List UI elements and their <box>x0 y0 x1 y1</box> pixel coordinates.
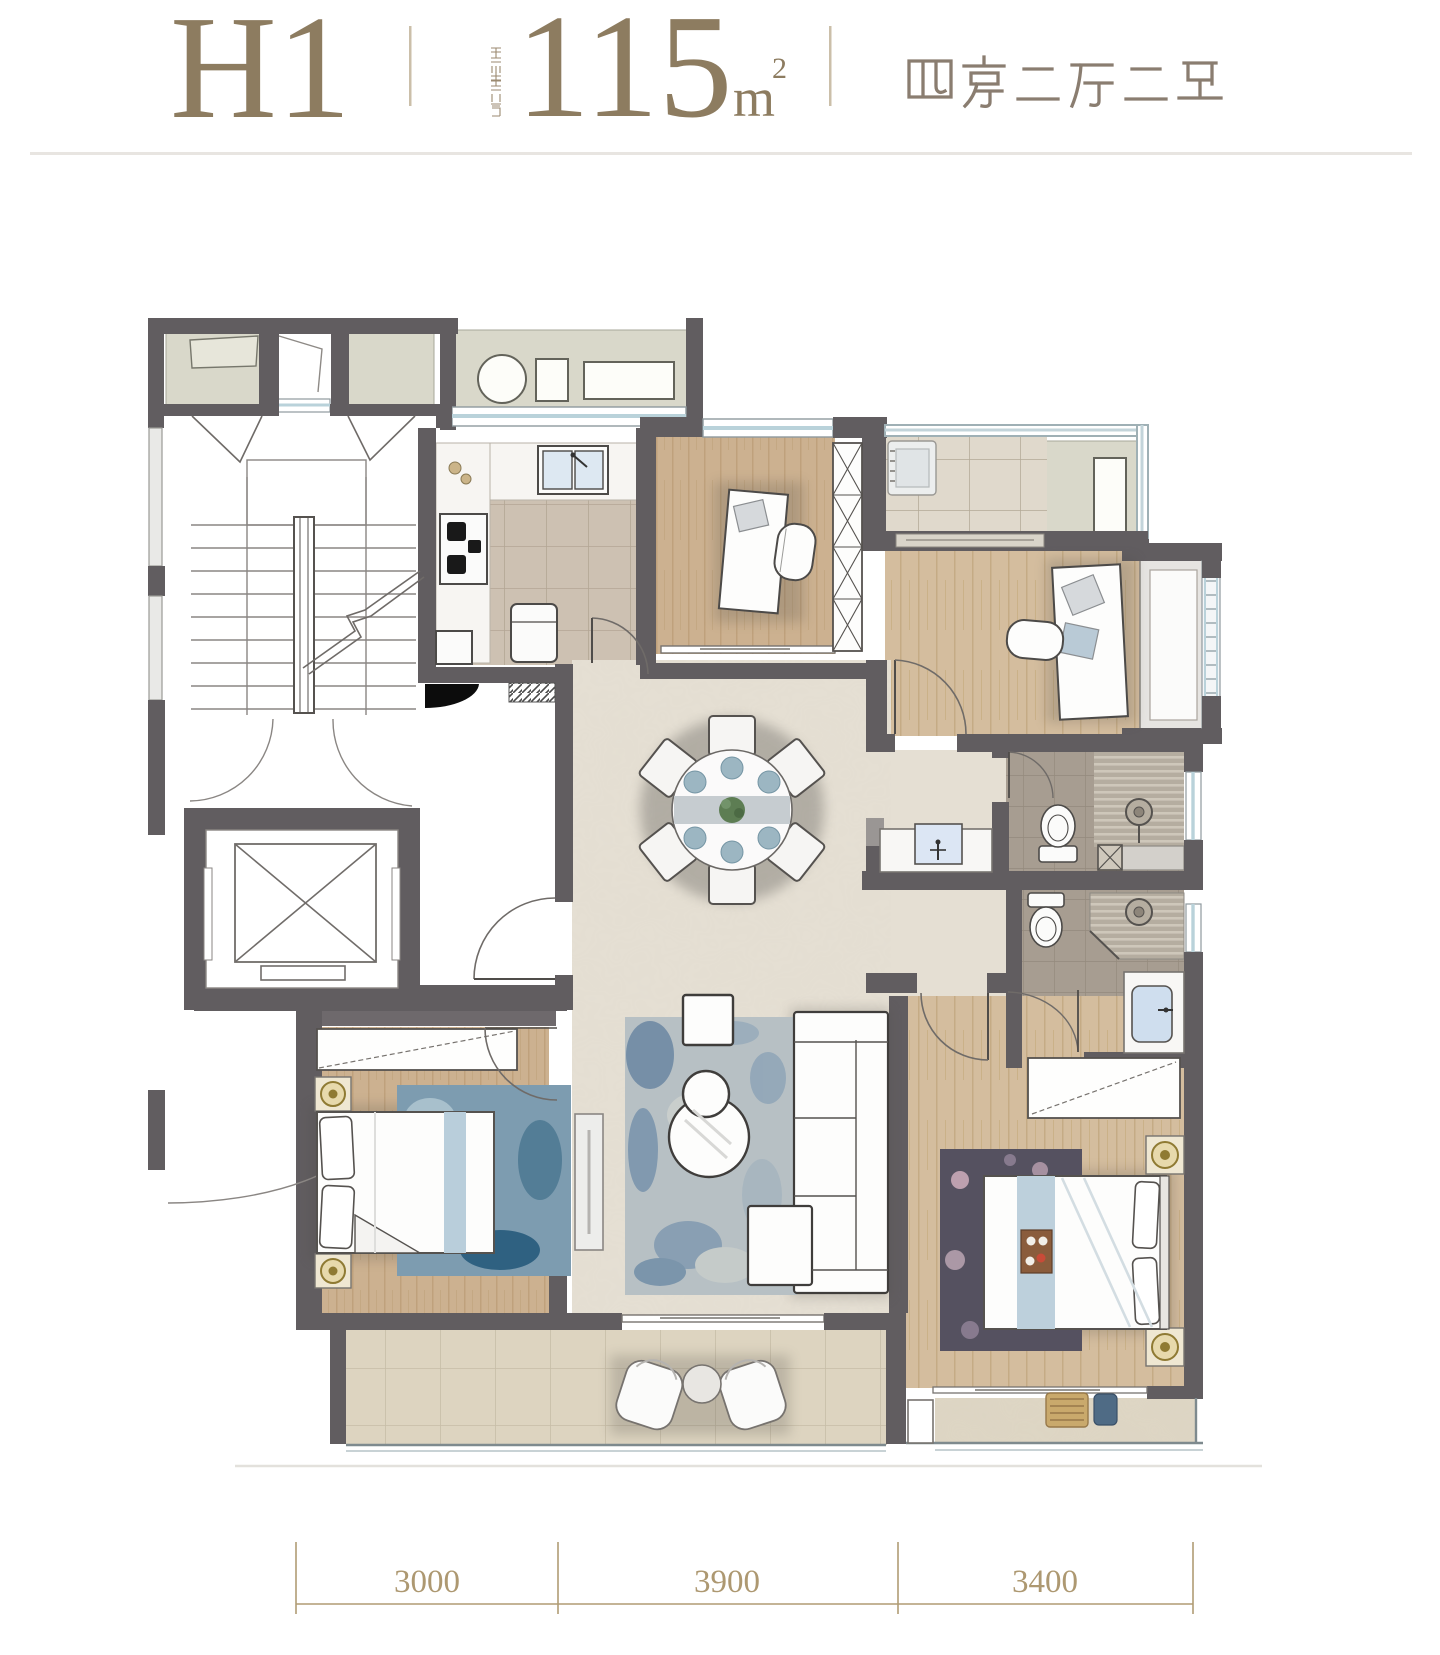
svg-text:3900: 3900 <box>694 1564 760 1600</box>
svg-text:H1: H1 <box>170 0 351 150</box>
svg-text:3400: 3400 <box>1012 1564 1078 1600</box>
svg-text:2: 2 <box>772 52 787 85</box>
svg-text:3000: 3000 <box>394 1564 460 1600</box>
svg-text:m: m <box>733 68 775 128</box>
svg-text:115: 115 <box>516 0 733 149</box>
